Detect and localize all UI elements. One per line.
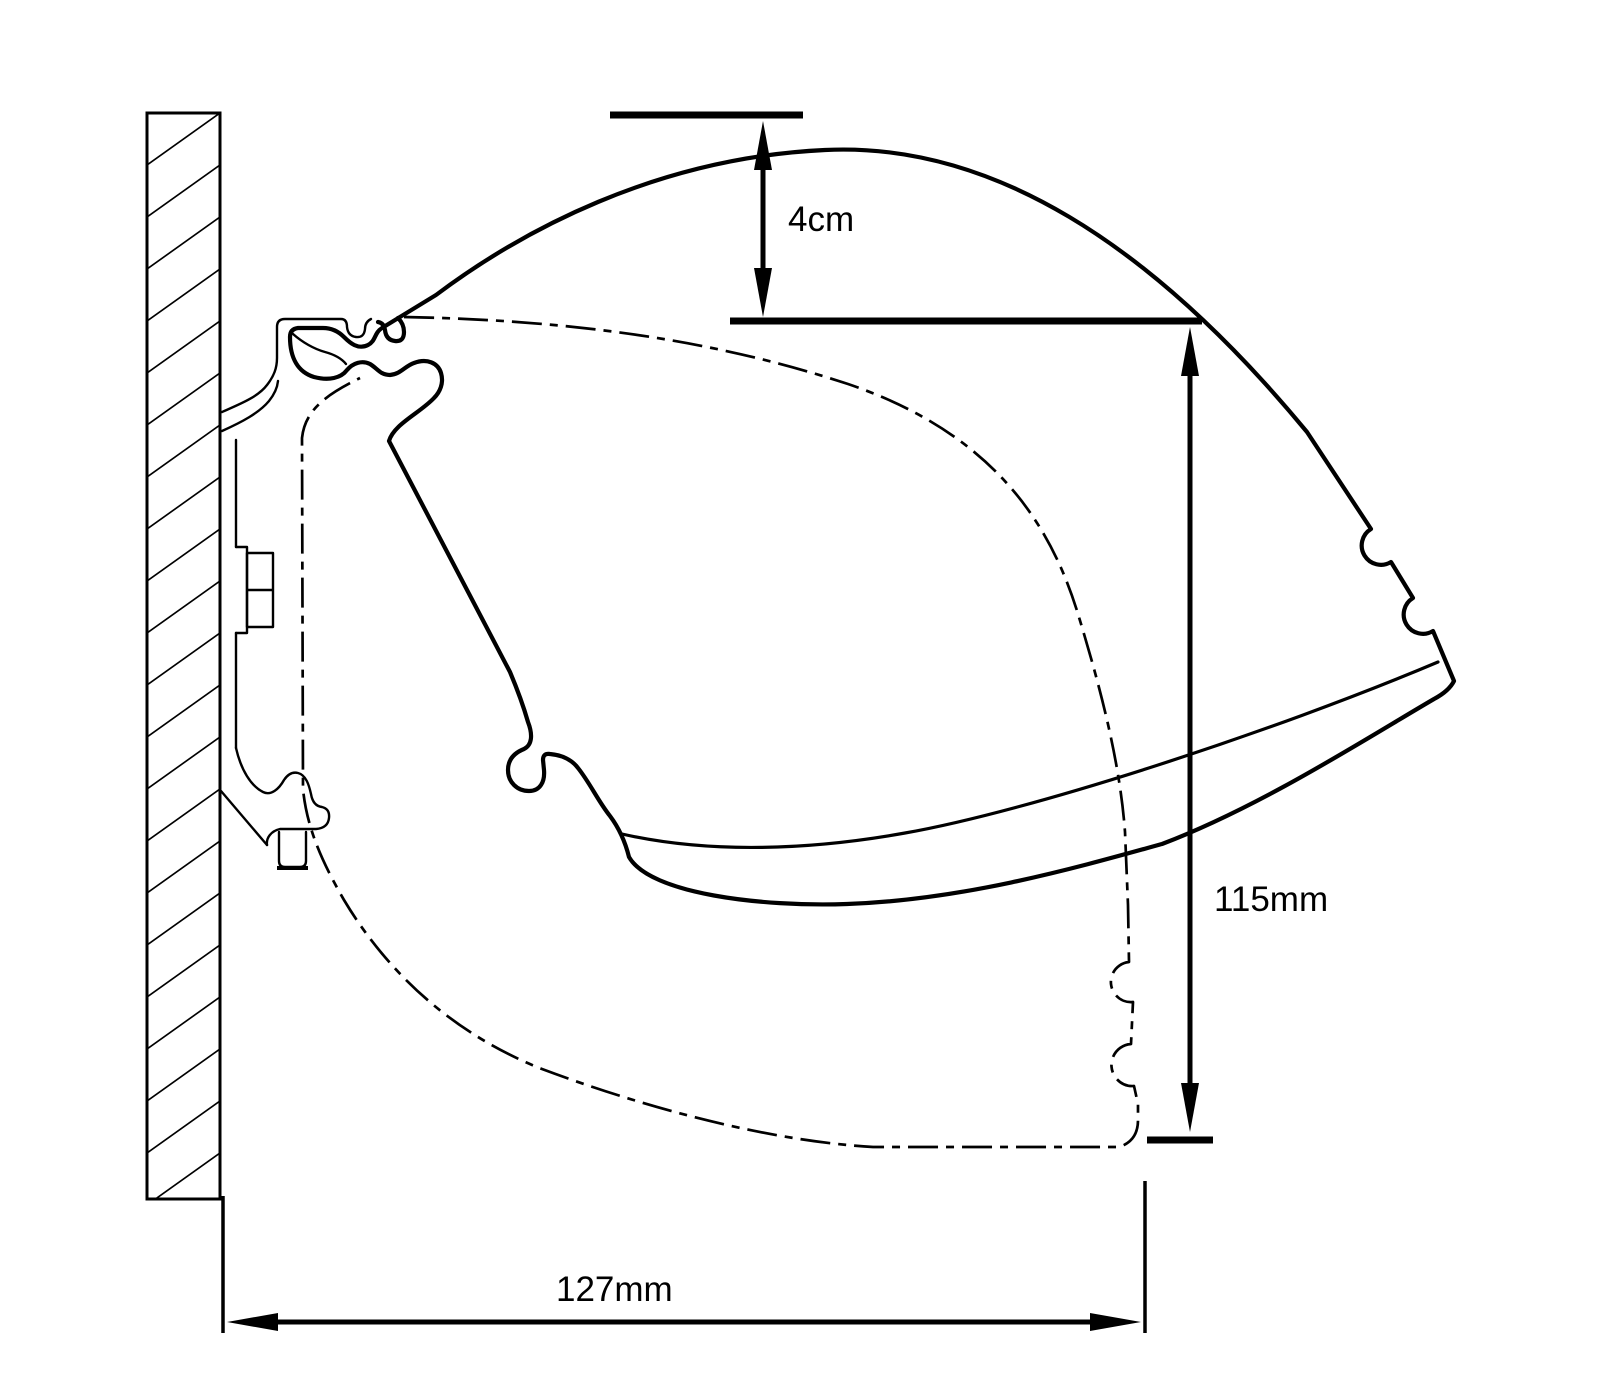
bracket-pocket-detail	[293, 334, 346, 364]
bracket-lower-nub	[277, 832, 308, 868]
dim-4cm-arrow-up	[754, 121, 772, 170]
bolt-hex-head	[247, 553, 273, 627]
mounting-bracket	[221, 319, 371, 868]
cassette-outline	[290, 150, 1454, 905]
dim-115mm-label: 115mm	[1214, 880, 1328, 919]
technical-drawing-page: 4cm 115mm 127mm	[0, 0, 1604, 1394]
bracket-lower-arm	[236, 748, 329, 845]
bracket-bolt	[236, 547, 273, 633]
dim-127mm-arrow-left	[227, 1313, 278, 1331]
dimension-127mm: 127mm	[223, 1181, 1145, 1333]
wall-section	[147, 113, 220, 1199]
dim-127mm-label: 127mm	[556, 1270, 673, 1309]
dim-4cm-label: 4cm	[788, 200, 854, 239]
cassette-closed-position	[290, 150, 1454, 905]
dim-115mm-arrow-up	[1181, 327, 1199, 376]
dimension-4cm: 4cm	[610, 115, 854, 317]
bracket-top-inner-edge	[222, 381, 278, 431]
nub-outline	[279, 832, 306, 867]
dim-4cm-arrow-down	[754, 268, 772, 317]
dim-115mm-arrow-down	[1181, 1083, 1199, 1132]
cassette-tilted-outline	[302, 317, 1138, 1147]
bolt-washer	[236, 547, 247, 633]
wall-hatch	[147, 113, 220, 1199]
dimension-115mm: 115mm	[1147, 327, 1328, 1140]
cassette-tilted-position	[302, 317, 1138, 1147]
bracket-underside-diagonal	[221, 791, 267, 845]
awning-bracket-cross-section: 4cm 115mm 127mm	[0, 0, 1604, 1394]
dim-127mm-arrow-right	[1090, 1313, 1141, 1331]
cassette-inner-bottom-edge	[622, 662, 1438, 847]
